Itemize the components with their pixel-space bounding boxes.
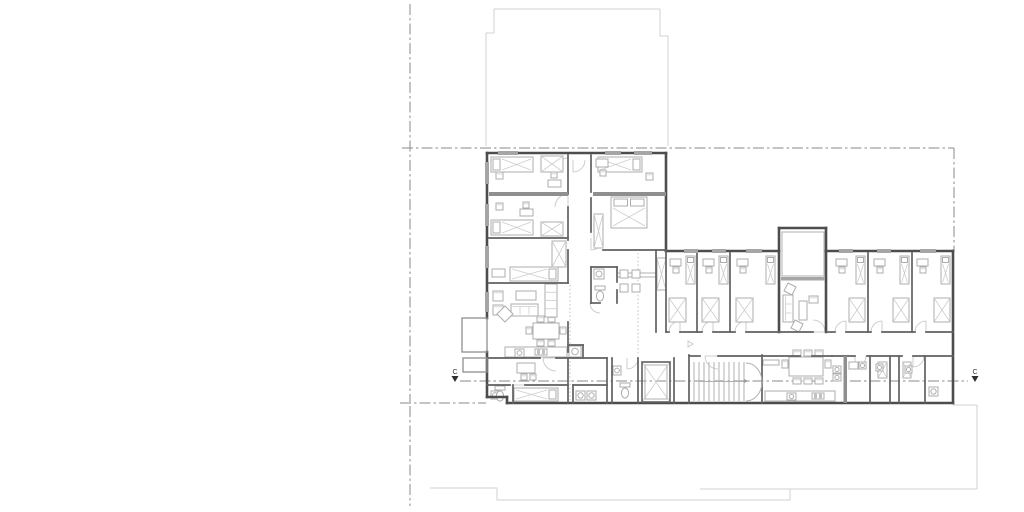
stair-rail bbox=[746, 363, 762, 401]
balcony-wall bbox=[463, 358, 487, 372]
table-symbol bbox=[533, 323, 559, 339]
chair-symbol bbox=[548, 340, 555, 346]
sofa-symbol bbox=[783, 295, 793, 322]
table-symbol bbox=[917, 259, 928, 266]
chair-symbol bbox=[920, 267, 926, 273]
chair-symbol bbox=[793, 350, 801, 356]
table-symbol bbox=[789, 357, 823, 376]
bed-pillow bbox=[768, 258, 774, 263]
balcony-wall bbox=[462, 318, 487, 352]
door-swing-arc bbox=[702, 321, 713, 332]
chair-symbol bbox=[496, 203, 503, 210]
floor-plan-canvas: C C bbox=[0, 0, 1024, 512]
chair-symbol bbox=[706, 267, 712, 273]
chair-symbol bbox=[809, 296, 818, 303]
stove-symbol bbox=[812, 393, 824, 399]
chair-symbol bbox=[839, 267, 845, 273]
door-swing-arc bbox=[573, 160, 585, 172]
table-symbol bbox=[836, 259, 847, 266]
wall-band bbox=[489, 192, 568, 196]
chair-symbol bbox=[496, 172, 503, 179]
stair-arrow bbox=[744, 379, 749, 383]
table-symbol bbox=[632, 270, 640, 278]
table-symbol bbox=[517, 363, 535, 373]
window-band bbox=[485, 162, 489, 184]
table-symbol bbox=[596, 159, 608, 167]
table-symbol bbox=[548, 180, 561, 187]
table-symbol bbox=[763, 360, 779, 365]
chair-symbol bbox=[673, 267, 679, 273]
chair-symbol bbox=[782, 360, 788, 368]
bed-pillow bbox=[614, 199, 628, 206]
table-symbol bbox=[492, 269, 505, 277]
window-band bbox=[634, 151, 652, 155]
direction-triangle bbox=[688, 341, 693, 347]
table-symbol bbox=[703, 259, 714, 266]
chair-symbol bbox=[825, 360, 831, 368]
chair-symbol bbox=[877, 267, 883, 273]
window-band bbox=[920, 249, 936, 253]
chair-symbol bbox=[537, 316, 544, 322]
table-symbol bbox=[620, 270, 628, 278]
stove-symbol bbox=[535, 349, 547, 355]
window-band bbox=[485, 204, 489, 226]
chair-symbol bbox=[530, 374, 536, 380]
window-band bbox=[877, 249, 891, 253]
window-band bbox=[485, 292, 489, 312]
chair-symbol bbox=[804, 378, 812, 384]
floor-plan-sheet: C C bbox=[0, 0, 1024, 512]
chair-symbol bbox=[600, 170, 606, 176]
toilet-symbol bbox=[621, 388, 628, 398]
chair-symbol bbox=[560, 327, 566, 334]
sink-symbol bbox=[569, 346, 581, 357]
door-swing-arc bbox=[813, 320, 825, 332]
section-marker-label-right: C bbox=[972, 369, 977, 376]
window-band bbox=[781, 277, 825, 281]
bed-pillow bbox=[688, 258, 694, 263]
context-outline bbox=[430, 488, 790, 500]
chair-symbol bbox=[526, 327, 532, 334]
sofa-symbol bbox=[511, 304, 538, 316]
bed-pillow bbox=[858, 258, 864, 263]
window-band bbox=[485, 246, 489, 268]
bed-pillow bbox=[902, 258, 908, 263]
wall-band bbox=[844, 356, 848, 403]
door-swing-arc bbox=[543, 358, 556, 371]
bed-pillow bbox=[493, 159, 500, 170]
door-swing-arc bbox=[669, 321, 680, 332]
bed-pillow bbox=[633, 159, 640, 170]
window-band bbox=[498, 151, 518, 155]
bed-pillow bbox=[631, 199, 645, 206]
door-swing-arc bbox=[915, 321, 926, 332]
table-symbol bbox=[874, 259, 885, 266]
chair-symbol bbox=[804, 350, 812, 356]
toilet-tank bbox=[620, 383, 630, 387]
table-symbol bbox=[620, 284, 628, 292]
chair-symbol bbox=[521, 374, 527, 380]
door-swing-arc bbox=[627, 358, 638, 369]
door-swing-arc bbox=[913, 356, 924, 367]
window-band bbox=[712, 249, 726, 253]
bed-pillow bbox=[493, 222, 500, 233]
toilet-tank bbox=[595, 286, 605, 290]
window-band bbox=[746, 249, 762, 253]
door-swing-arc bbox=[590, 303, 600, 313]
table-symbol bbox=[520, 209, 533, 216]
section-cut-triangle bbox=[972, 376, 979, 382]
chair-symbol bbox=[646, 173, 653, 180]
door-swing-arc bbox=[835, 321, 846, 332]
wall-band bbox=[593, 192, 666, 196]
door-swing-arc bbox=[871, 321, 882, 332]
table-symbol bbox=[516, 291, 536, 300]
chair-symbol bbox=[815, 350, 823, 356]
section-marker-label-left: C bbox=[452, 369, 457, 376]
table-symbol bbox=[737, 259, 748, 266]
context-building-outlines bbox=[430, 9, 977, 500]
window-band bbox=[684, 249, 698, 253]
toilet-symbol bbox=[596, 291, 603, 301]
table-symbol bbox=[632, 284, 640, 292]
section-cut-triangle bbox=[452, 376, 459, 382]
chair-symbol bbox=[815, 378, 823, 384]
bed-pillow bbox=[721, 258, 727, 263]
table-symbol bbox=[799, 301, 807, 320]
bed-pillow bbox=[549, 269, 556, 279]
door-swing-arc bbox=[735, 321, 746, 332]
chair-symbol bbox=[740, 267, 746, 273]
toilet-tank bbox=[495, 386, 505, 390]
door-swing-arc bbox=[705, 356, 718, 369]
table-symbol bbox=[670, 259, 681, 266]
detail-rect bbox=[782, 232, 824, 276]
chair-symbol bbox=[537, 340, 544, 346]
chair-symbol bbox=[523, 202, 529, 208]
window-band bbox=[839, 249, 853, 253]
table-symbol bbox=[849, 362, 858, 369]
bed-pillow bbox=[549, 390, 556, 399]
chair-symbol bbox=[793, 378, 801, 384]
furniture-polygon bbox=[784, 283, 796, 295]
window-band bbox=[605, 151, 621, 155]
bed-pillow bbox=[943, 258, 949, 263]
chair-symbol bbox=[551, 172, 557, 178]
